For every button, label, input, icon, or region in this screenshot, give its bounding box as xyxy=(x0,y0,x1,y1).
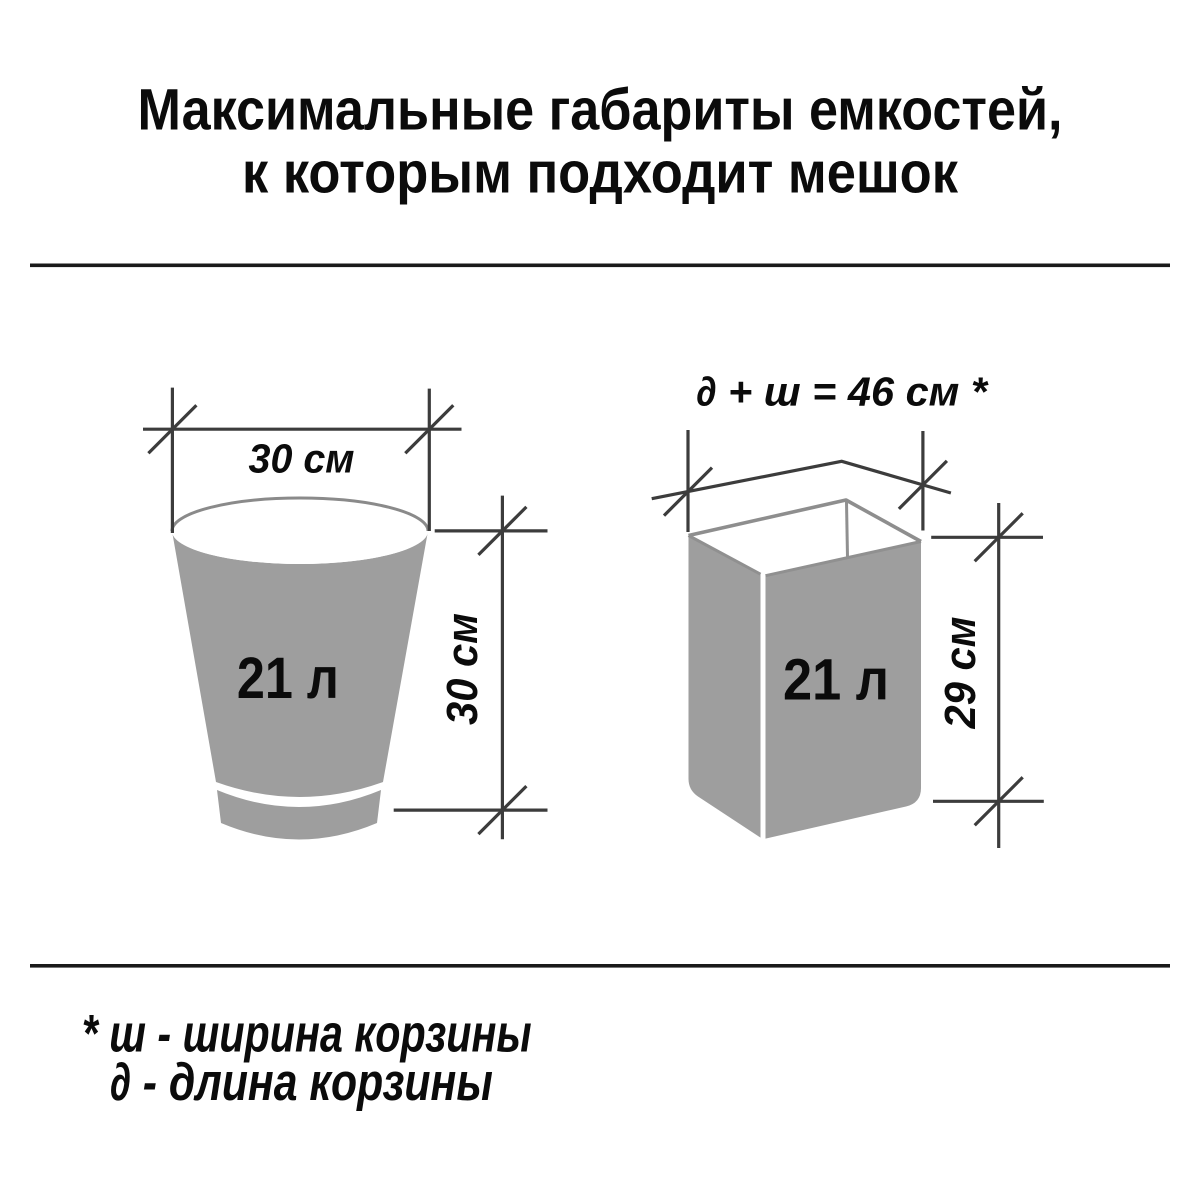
svg-text:29 см: 29 см xyxy=(936,617,985,730)
svg-text:21 л: 21 л xyxy=(237,646,339,711)
svg-text:Максимальные габариты емкостей: Максимальные габариты емкостей, xyxy=(138,78,1063,143)
svg-text:21 л: 21 л xyxy=(783,647,889,712)
svg-text:30 см: 30 см xyxy=(249,436,355,482)
svg-text:∂ - длина корзины: ∂ - длина корзины xyxy=(110,1053,493,1112)
svg-text:к которым подходит мешок: к которым подходит мешок xyxy=(242,140,959,205)
svg-text:∂ + ш = 46 см *: ∂ + ш = 46 см * xyxy=(696,369,989,415)
svg-text:30 см: 30 см xyxy=(438,613,487,725)
